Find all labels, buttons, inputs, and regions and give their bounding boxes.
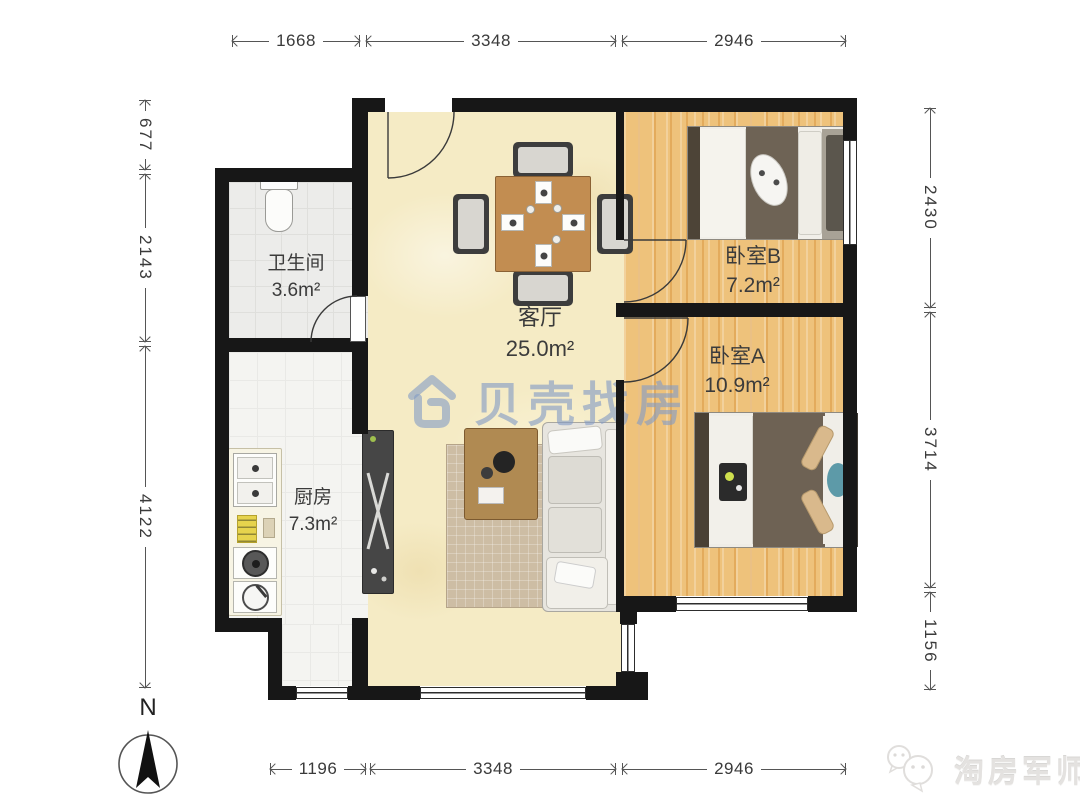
sink-pad: [233, 581, 277, 613]
dim-right-1: 2430: [923, 108, 937, 308]
dim-left-3: 4122: [138, 346, 152, 688]
wall: [268, 686, 296, 700]
dim-line: [145, 175, 146, 228]
dim-right-2: 3714: [923, 312, 937, 588]
bedroom-a-label: 卧室A 10.9m²: [704, 342, 769, 400]
burner-knob: [252, 465, 259, 472]
wall: [843, 245, 857, 612]
room-name: 卧室A: [704, 342, 769, 371]
cup-icon: [552, 235, 561, 244]
dim-bottom-1: 1196: [270, 762, 366, 776]
dining-chair-left: [453, 194, 489, 254]
room-area: 7.2m²: [725, 271, 781, 300]
chair-cushion: [602, 199, 628, 249]
dim-top-1: 1668: [232, 34, 360, 48]
cabinet-x-brace: [363, 431, 393, 593]
dim-line: [623, 769, 707, 770]
kitchen-counter: [228, 448, 282, 616]
wall: [215, 168, 229, 632]
placemat: [535, 244, 552, 267]
dim-line: [930, 480, 931, 587]
dim-line: [367, 41, 464, 42]
compass-north-icon: [116, 724, 180, 796]
decor-dot: [773, 178, 781, 186]
counter-item: [263, 518, 275, 538]
dim-line: [761, 41, 845, 42]
dining-chair-bottom: [513, 270, 573, 306]
decor-dot: [758, 169, 766, 177]
laptop-icon: [719, 463, 747, 501]
brand-watermark: 淘房军师: [882, 742, 1080, 796]
dim-line: [323, 41, 359, 42]
wall: [215, 338, 368, 352]
dim-line: [520, 769, 615, 770]
dining-chair-right: [597, 194, 633, 254]
dim-top-2: 3348: [366, 34, 616, 48]
sofa: [542, 422, 622, 612]
dim-line: [145, 288, 146, 341]
dim-line: [930, 109, 931, 178]
plate-dot: [540, 189, 547, 196]
window-kitchen: [296, 687, 348, 699]
table-plant: [493, 451, 515, 473]
beike-house-icon: [404, 372, 460, 430]
chat-bubbles-icon: [882, 742, 944, 796]
bed-footboard: [688, 127, 700, 239]
compass-north-label: N: [139, 694, 156, 722]
plate-dot: [540, 252, 547, 259]
chair-cushion: [458, 199, 484, 249]
dim-value: 2946: [714, 34, 754, 48]
bed-single-b: [687, 126, 853, 240]
window-living-room: [420, 687, 586, 699]
kitchen-label: 厨房 7.3m²: [289, 484, 338, 538]
dining-set: [453, 142, 633, 306]
dim-value: 2430: [923, 185, 937, 231]
room-area: 7.3m²: [289, 511, 338, 538]
dim-bottom-3: 2946: [622, 762, 846, 776]
dim-line: [145, 347, 146, 487]
dim-line: [930, 670, 931, 688]
dim-top-3: 2946: [622, 34, 846, 48]
laptop-dot-white: [736, 485, 742, 491]
dim-right-3: 1156: [923, 592, 937, 690]
sofa-cushion-2: [548, 507, 602, 553]
wall: [452, 98, 857, 112]
dim-left-2: 2143: [138, 174, 152, 342]
brand-watermark-text: 淘房军师: [954, 747, 1080, 791]
wok-center: [252, 560, 260, 568]
window-bedroom-b: [843, 140, 857, 245]
wall: [843, 112, 857, 140]
room-area: 3.6m²: [267, 277, 324, 304]
placemat: [501, 214, 524, 231]
wok-burner-pad: [233, 547, 277, 579]
sofa-cushion-1: [548, 456, 602, 504]
dim-line: [145, 159, 146, 169]
wall: [352, 112, 368, 296]
dim-line: [344, 769, 364, 770]
bed-double-a: [694, 412, 857, 548]
chair-cushion: [518, 147, 568, 173]
dining-chair-top: [513, 142, 573, 178]
dim-value: 3714: [923, 427, 937, 473]
table-tray: [478, 487, 504, 504]
toilet-icon: [258, 178, 302, 236]
wall: [808, 596, 857, 612]
room-area: 25.0m²: [506, 333, 574, 364]
wall: [616, 380, 624, 612]
dim-line: [623, 41, 707, 42]
dim-line: [761, 769, 845, 770]
room-name: 卫生间: [267, 250, 324, 277]
bedroom-b-label: 卧室B 7.2m²: [725, 242, 781, 300]
sofa-pillow-bottom: [553, 561, 596, 590]
dim-value: 1156: [923, 619, 937, 664]
floor-plan-canvas: 贝壳找房 卫生间 3.6m²: [0, 0, 1080, 810]
window-bedroom-a: [676, 597, 808, 611]
stove-icon: [233, 453, 277, 507]
beike-watermark: 贝壳找房: [404, 366, 690, 435]
dim-line: [371, 769, 466, 770]
wall: [215, 168, 368, 182]
toilet-bowl: [265, 189, 293, 232]
room-name: 客厅: [506, 302, 574, 333]
dim-line: [930, 238, 931, 307]
room-area: 10.9m²: [704, 371, 769, 400]
burner-knob-2: [252, 490, 259, 497]
wall: [362, 686, 420, 700]
wall: [352, 98, 385, 112]
dim-value: 1668: [276, 34, 316, 48]
bed-sheet: [700, 129, 746, 237]
coffee-table: [464, 428, 538, 520]
bathroom-door-leaf: [350, 296, 366, 342]
cutting-board-icon: [237, 515, 257, 543]
bed-blanket: [753, 413, 825, 547]
bed-footboard: [695, 413, 709, 547]
wall: [616, 303, 857, 317]
wok-burner-icon: [242, 550, 269, 577]
table-bowl: [481, 467, 493, 479]
bed-pillow: [798, 131, 822, 235]
wall: [620, 608, 637, 624]
dim-value: 1196: [299, 762, 338, 776]
placemat: [535, 181, 552, 204]
window-living-side: [621, 624, 635, 672]
dim-line: [930, 593, 931, 611]
dim-value: 3348: [471, 34, 511, 48]
dining-table: [495, 176, 591, 272]
wall: [616, 672, 648, 700]
plate-dot: [570, 219, 577, 226]
cup-icon: [553, 204, 562, 213]
tv-cabinet: [362, 430, 394, 594]
laptop-dot-green: [725, 472, 734, 481]
dim-line: [233, 41, 269, 42]
dim-left-1: 677: [138, 100, 152, 170]
dim-value: 3348: [473, 762, 513, 776]
compass: N: [112, 694, 184, 796]
dim-value: 2946: [714, 762, 754, 776]
living-room-label: 客厅 25.0m²: [506, 302, 574, 364]
dim-line: [271, 769, 291, 770]
dim-value: 4122: [138, 494, 152, 540]
dim-line: [930, 313, 931, 420]
dim-line: [145, 101, 146, 111]
bathroom-label: 卫生间 3.6m²: [267, 250, 324, 304]
dim-value: 677: [138, 118, 152, 152]
placemat: [562, 214, 585, 231]
room-name: 厨房: [289, 484, 338, 511]
dim-line: [145, 547, 146, 687]
sofa-chaise: [546, 557, 608, 609]
dim-bottom-2: 3348: [370, 762, 616, 776]
dim-value: 2143: [138, 235, 152, 281]
room-name: 卧室B: [725, 242, 781, 271]
wall: [616, 112, 624, 240]
chair-cushion: [518, 275, 568, 301]
cup-icon: [526, 205, 535, 214]
beike-watermark-text: 贝壳找房: [474, 366, 690, 435]
plate-dot: [509, 219, 516, 226]
wall: [352, 342, 368, 434]
dim-line: [518, 41, 615, 42]
